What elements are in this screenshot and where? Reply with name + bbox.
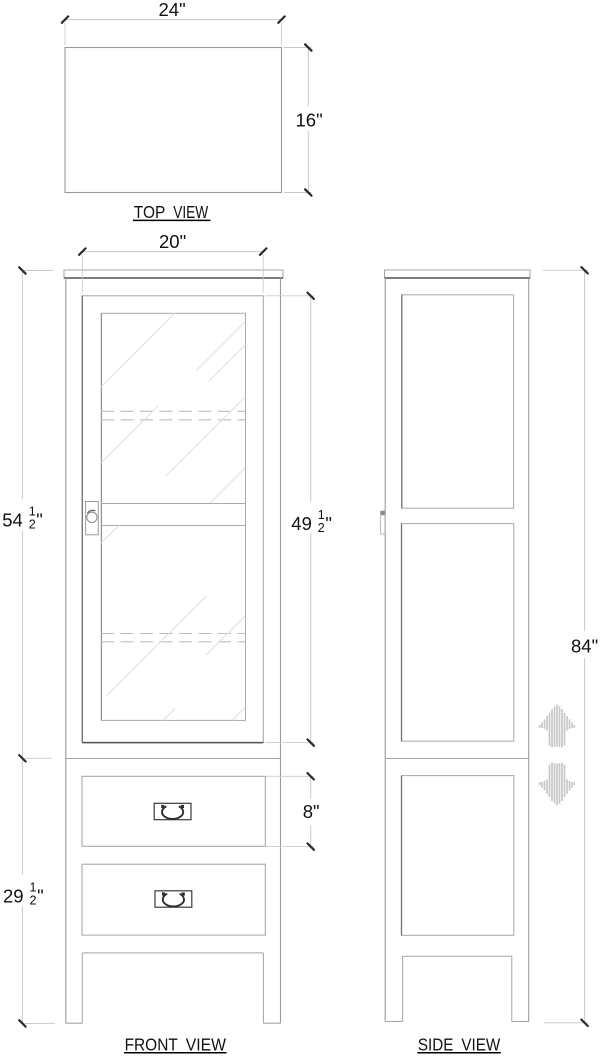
- svg-text:1: 1: [29, 504, 36, 518]
- svg-text:FRONT: FRONT: [125, 1035, 178, 1055]
- svg-text:24": 24": [159, 0, 186, 20]
- svg-text:29: 29: [3, 886, 24, 907]
- svg-text:": ": [325, 513, 332, 534]
- svg-text:VIEW: VIEW: [461, 1035, 500, 1055]
- svg-text:VIEW: VIEW: [173, 202, 208, 222]
- svg-text:54: 54: [2, 510, 23, 531]
- svg-text:": ": [37, 886, 44, 907]
- svg-text:20": 20": [159, 231, 186, 252]
- svg-text:1: 1: [30, 881, 37, 895]
- svg-text:2: 2: [318, 521, 325, 535]
- svg-text:16": 16": [296, 109, 323, 130]
- svg-text:SIDE: SIDE: [418, 1035, 454, 1055]
- svg-text:1: 1: [318, 508, 325, 522]
- svg-text:TOP: TOP: [134, 202, 166, 222]
- svg-text:84": 84": [571, 636, 598, 657]
- svg-text:2: 2: [29, 517, 36, 531]
- svg-text:VIEW: VIEW: [186, 1035, 227, 1055]
- svg-text:49: 49: [291, 513, 312, 534]
- svg-text:8": 8": [303, 801, 320, 822]
- svg-text:": ": [36, 510, 43, 531]
- svg-text:2: 2: [30, 894, 37, 908]
